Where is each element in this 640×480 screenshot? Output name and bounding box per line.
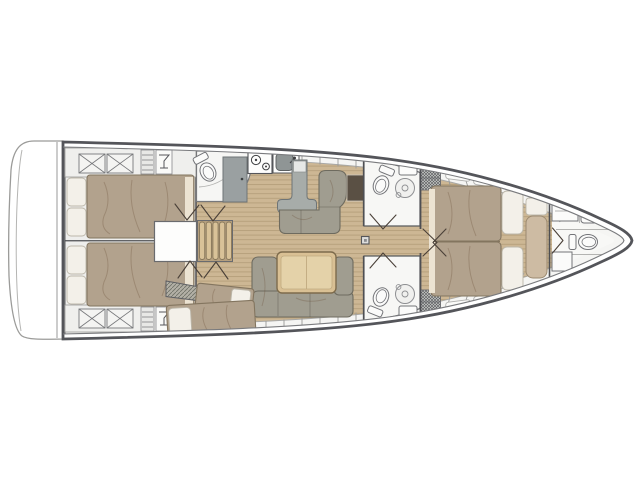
- fridge: [223, 157, 247, 202]
- chart-table: [347, 175, 364, 201]
- cabinet-striped: [141, 307, 154, 331]
- floor-plan-canvas: [0, 0, 640, 480]
- mast-post: [362, 237, 370, 245]
- engine-access-box: [155, 222, 197, 262]
- cabin-bench: [526, 198, 547, 278]
- shower-icon: [396, 179, 415, 198]
- companionway-stairs: [198, 221, 233, 262]
- wet-bar: [156, 150, 172, 174]
- owner-cabin: [421, 166, 548, 314]
- shower-icon: [396, 285, 415, 304]
- cabinet-striped: [141, 150, 154, 174]
- salon-table: [277, 252, 336, 293]
- cabinet: [552, 252, 572, 271]
- swim-platform: [9, 141, 63, 339]
- yacht-floor-plan: [0, 0, 640, 480]
- salon: [252, 252, 353, 317]
- salon-sofa-right: [334, 257, 353, 295]
